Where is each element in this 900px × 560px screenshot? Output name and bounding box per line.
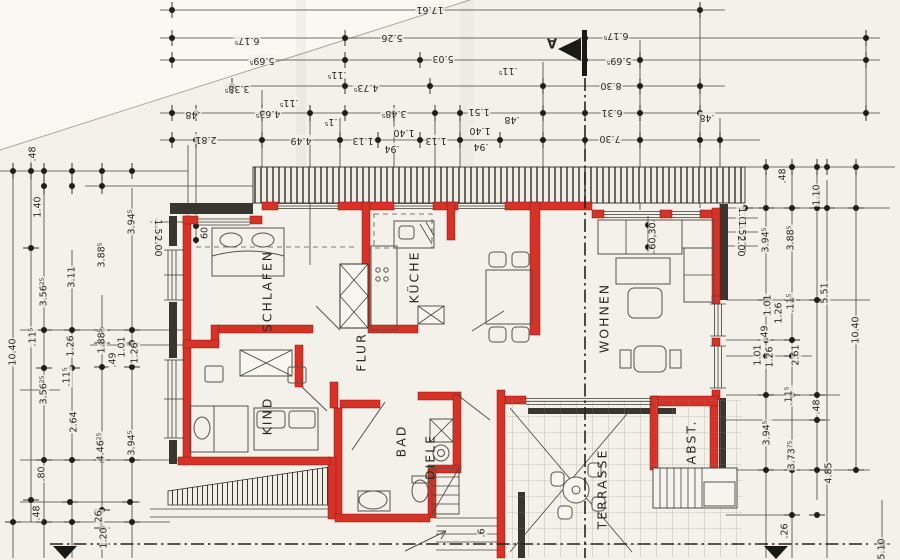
roof-overhang-hatch: [253, 167, 745, 203]
paper-background: [0, 0, 900, 560]
floorplan-page: 17.616.17⁵5.266.17⁵5.69⁵5.035.69⁵3.38⁵.1…: [0, 0, 900, 560]
storage-steps: [653, 468, 737, 508]
chimney: [340, 264, 368, 328]
section-bar: [582, 30, 587, 76]
floorplan-drawing: [0, 0, 900, 560]
